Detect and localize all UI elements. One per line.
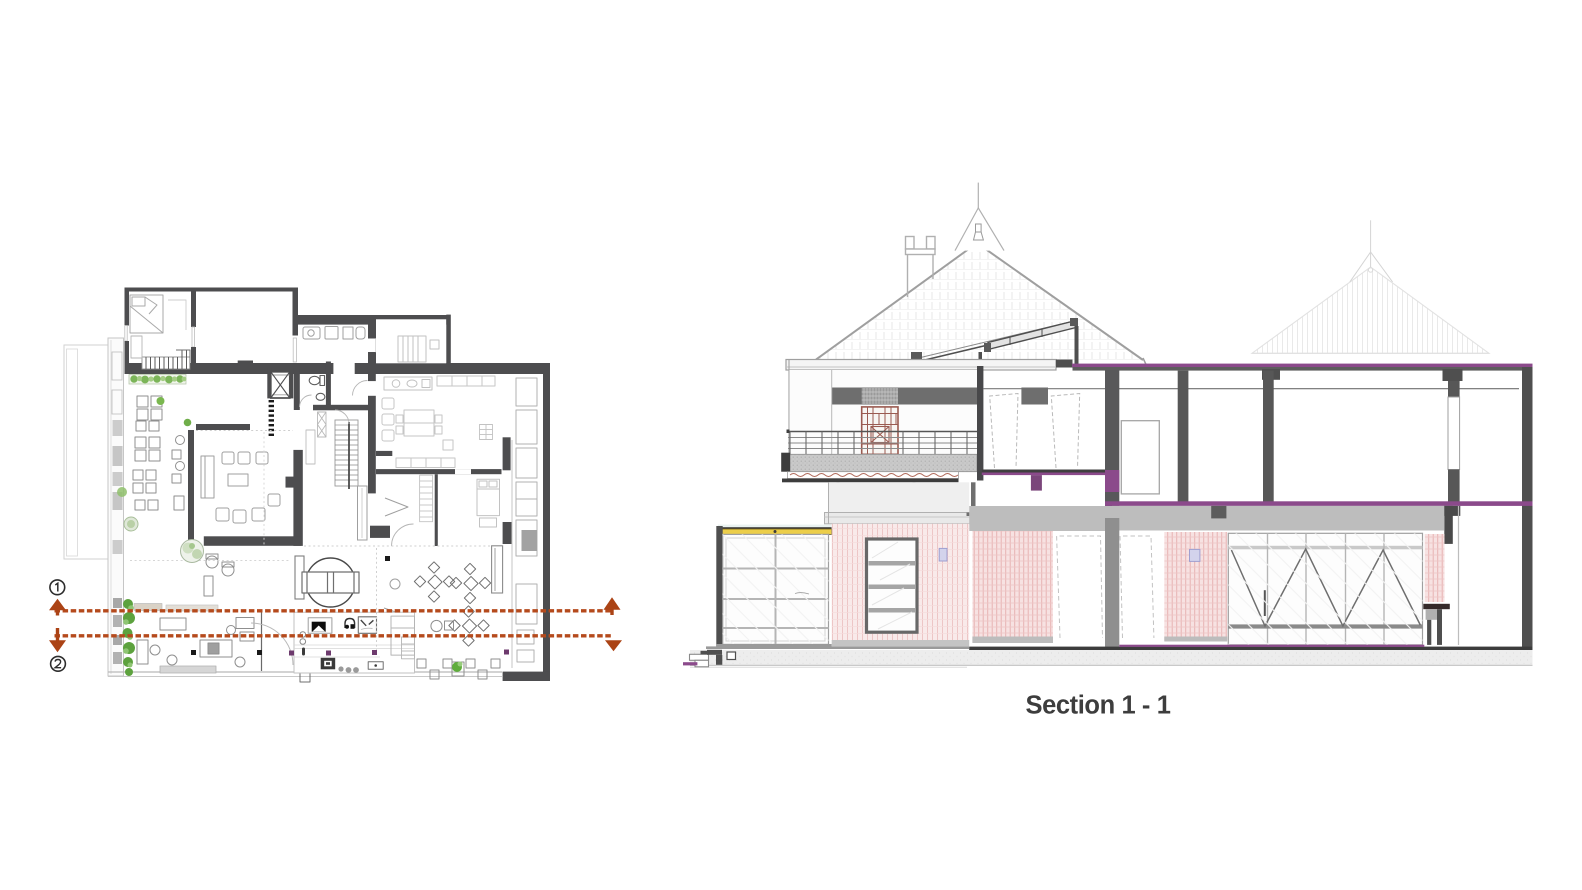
svg-text:Section 1 - 1: Section 1 - 1	[1025, 692, 1170, 720]
